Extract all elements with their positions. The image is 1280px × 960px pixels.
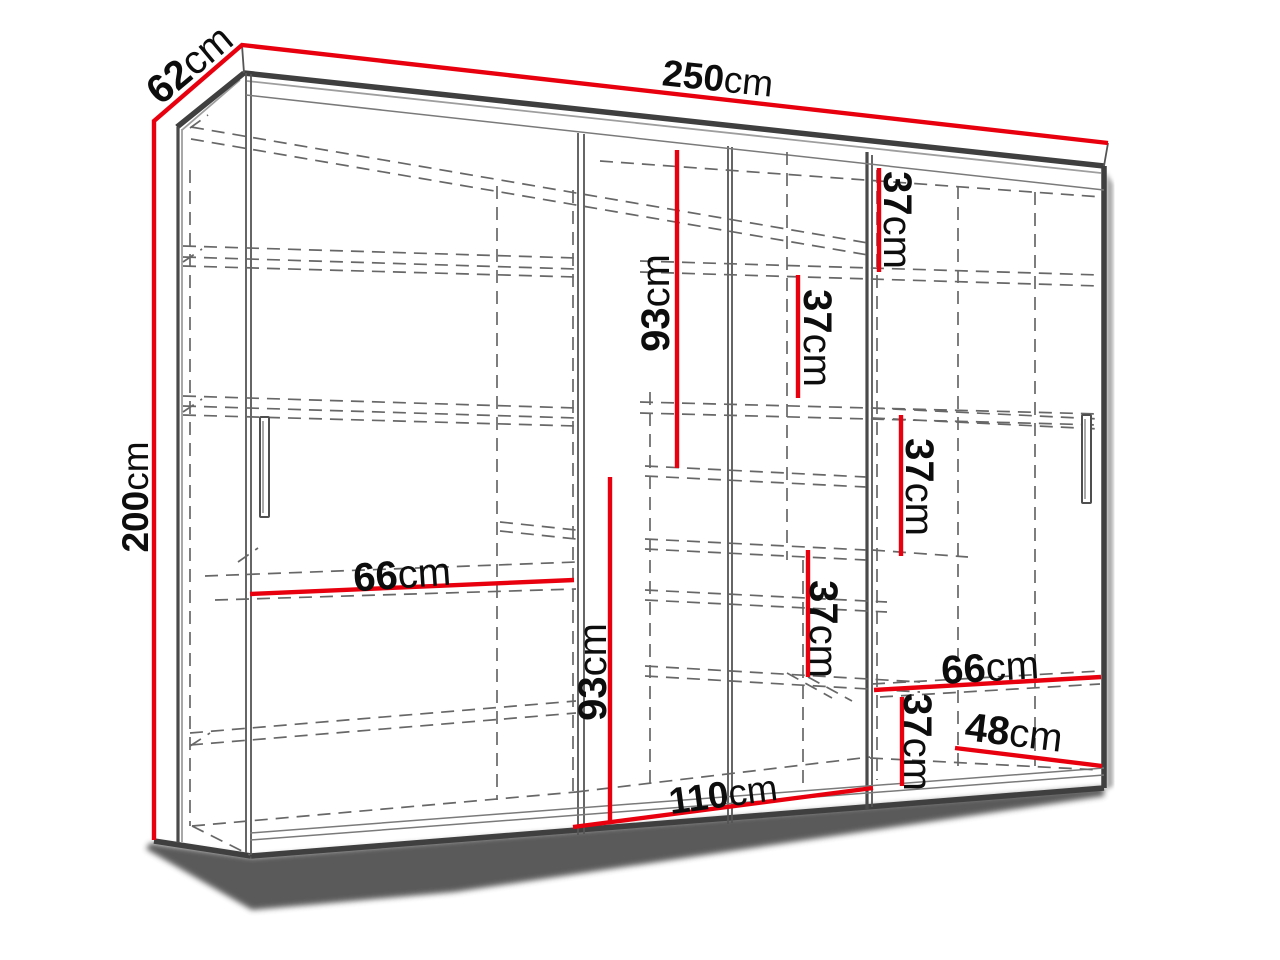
dimension-label-93-lower: 93cm <box>571 623 615 721</box>
dimension-label-37-top-right: 37cm <box>875 171 919 269</box>
dimension-label-66-right: 66cm <box>940 643 1040 693</box>
wardrobe-dimensions-diagram: 250cm 62cm 200cm 93cm 93cm 37cm 37cm 37c… <box>0 0 1280 960</box>
dimension-label-37-lower-middle: 37cm <box>801 580 845 678</box>
dimension-label-37-upper-middle: 37cm <box>795 289 839 387</box>
diagram-canvas: 250cm 62cm 200cm 93cm 93cm 37cm 37cm 37c… <box>0 0 1280 960</box>
dimension-label-37-bottom-right: 37cm <box>895 693 939 791</box>
left-door-handle <box>260 417 269 517</box>
right-door-handle <box>1082 415 1091 503</box>
dimension-label-height-200: 200cm <box>115 441 156 552</box>
dimension-label-93-upper: 93cm <box>634 254 678 352</box>
right-edge-shadow <box>1106 172 1113 790</box>
dimension-label-66-left: 66cm <box>352 550 453 601</box>
dimension-label-37-right-middle: 37cm <box>897 438 941 536</box>
